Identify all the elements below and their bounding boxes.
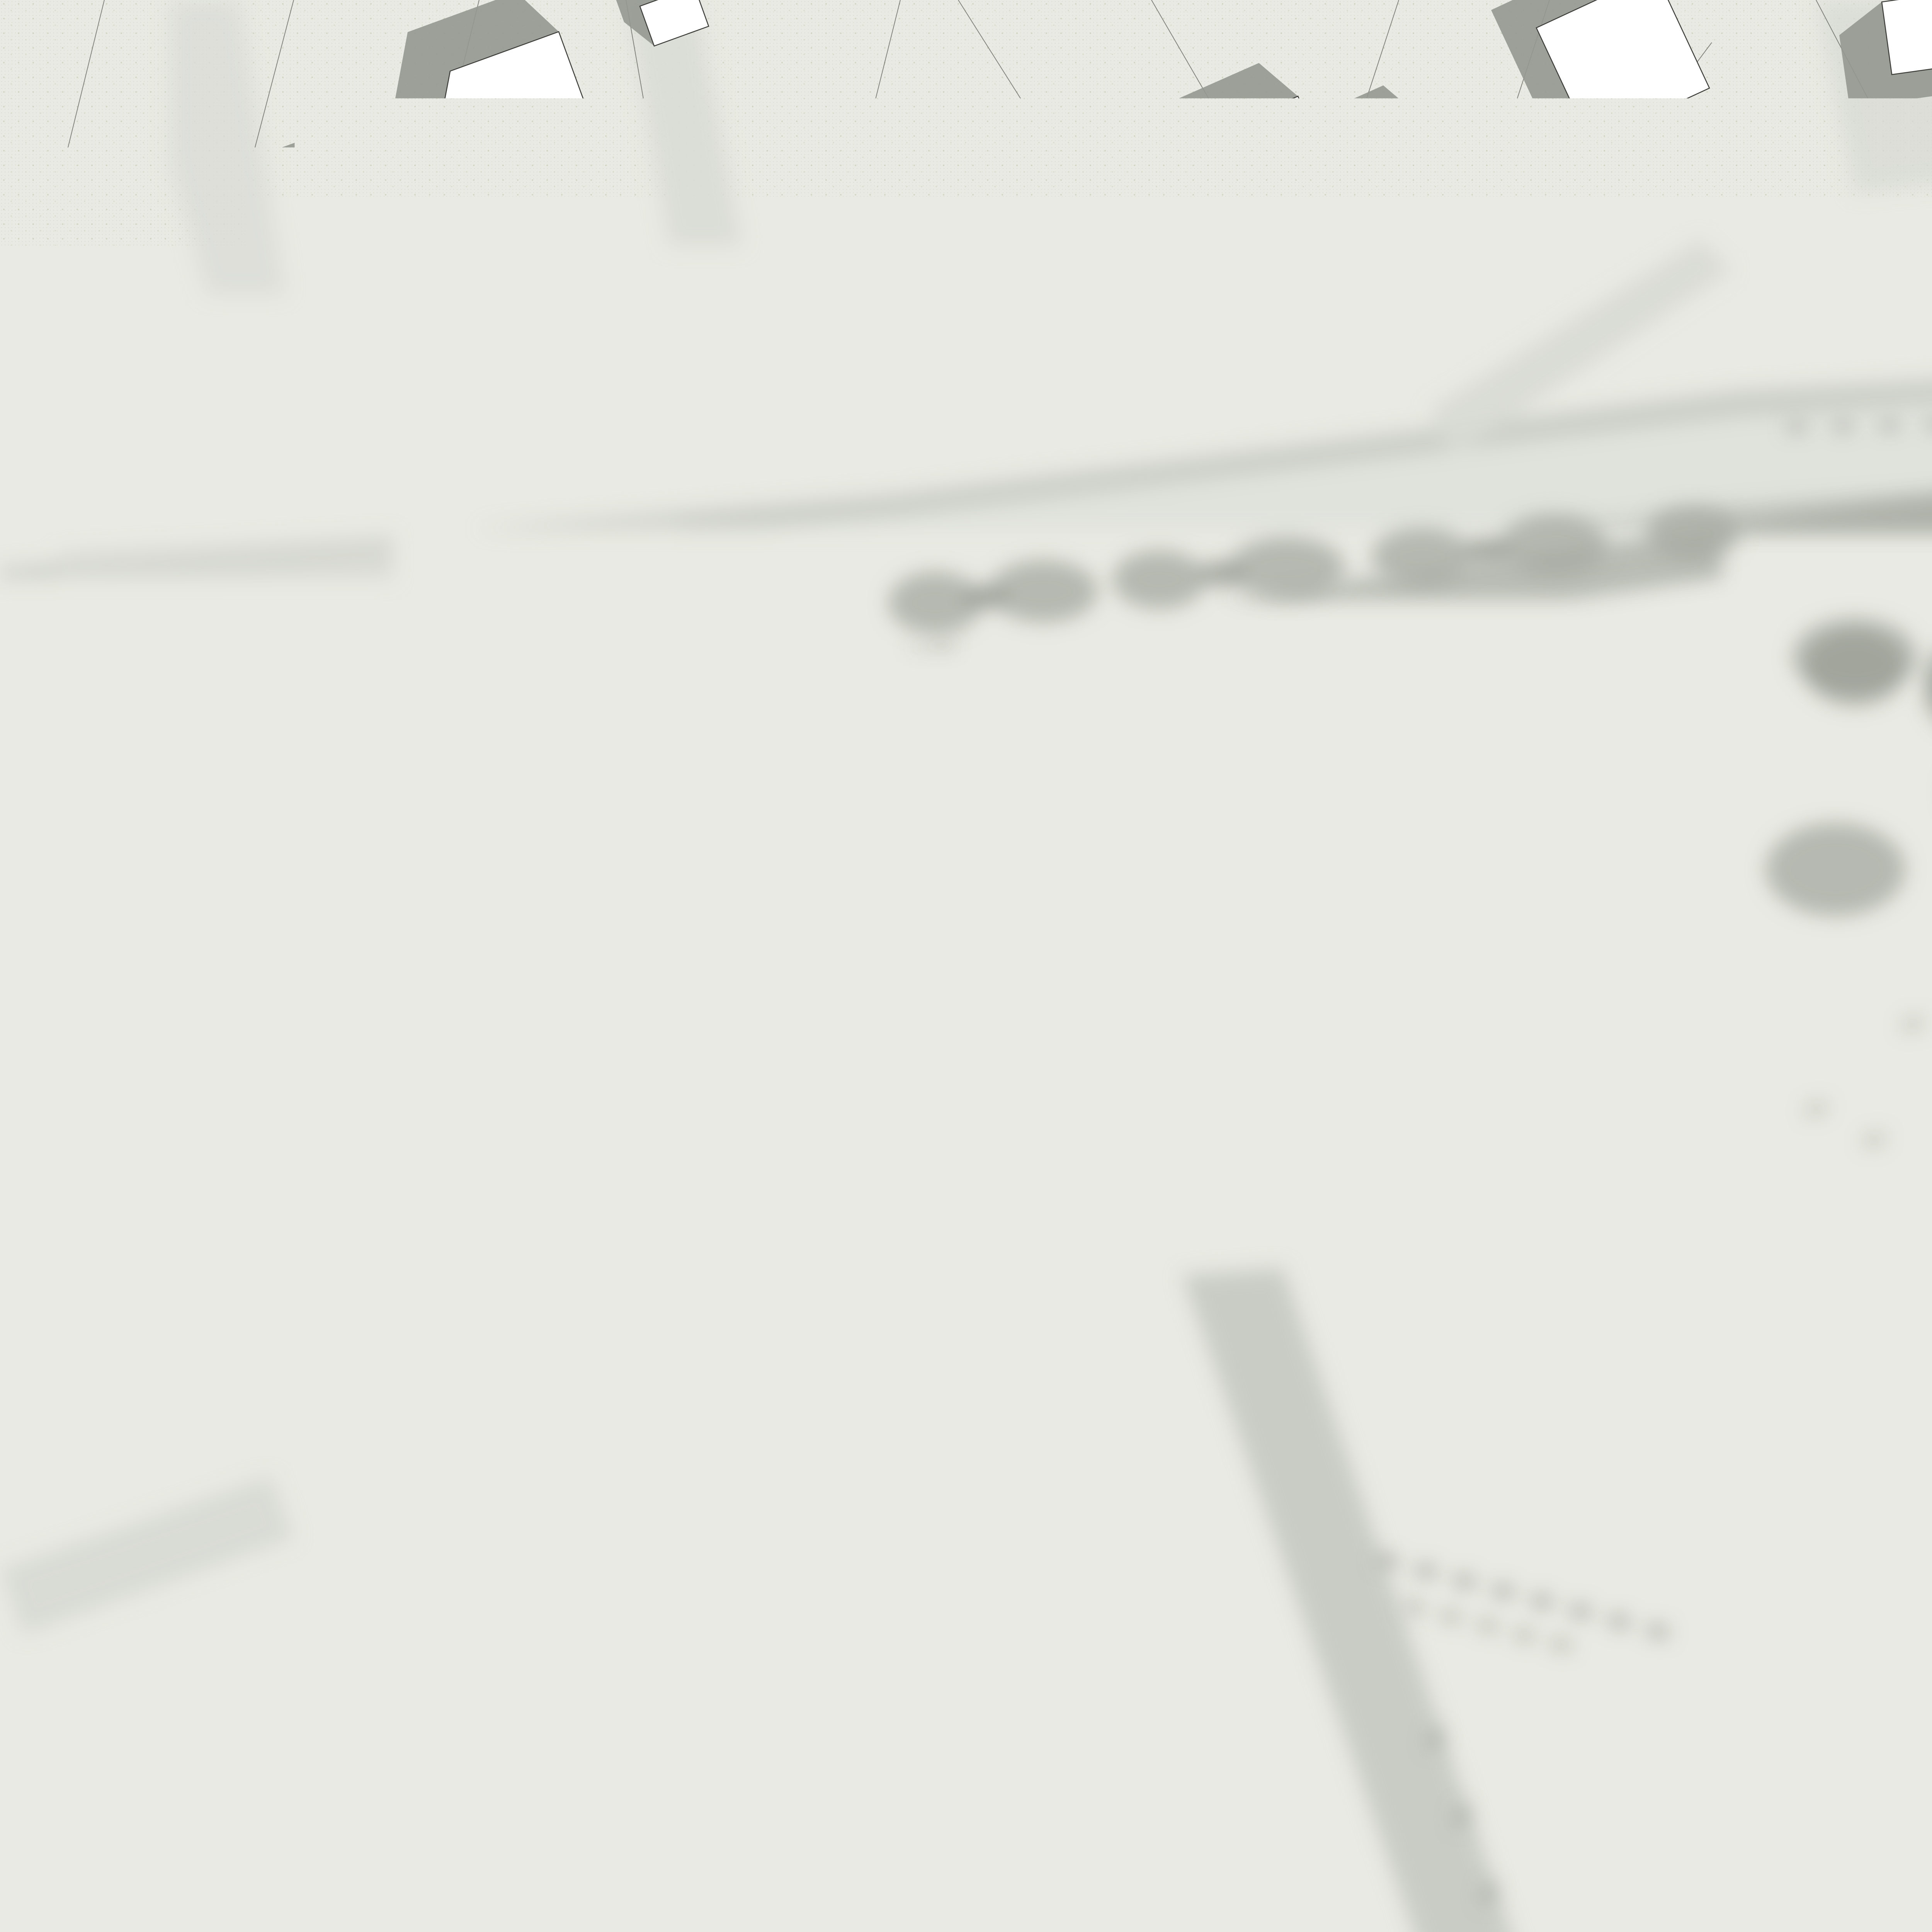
svg-text:Antenne: Antenne (708, 1201, 743, 1212)
svg-text:Accès: Accès (1463, 1281, 1483, 1289)
svg-text:Espace extérieur: Espace extérieur (1347, 1053, 1418, 1061)
svg-text:Surf : 52,59 m²: Surf : 52,59 m² (1354, 1063, 1406, 1070)
svg-text:Accès: Accès (1203, 1099, 1224, 1107)
svg-text:Possibilité extension: Possibilité extension (1532, 927, 1621, 935)
svg-text:food-truck: food-truck (1199, 1108, 1234, 1116)
svg-text:food-truck: food-truck (1459, 1291, 1493, 1298)
svg-text:Façade Sud: Façade Sud (1693, 1100, 1736, 1110)
svg-text:Surf : 244,96 m²: Surf : 244,96 m² (1540, 937, 1596, 945)
